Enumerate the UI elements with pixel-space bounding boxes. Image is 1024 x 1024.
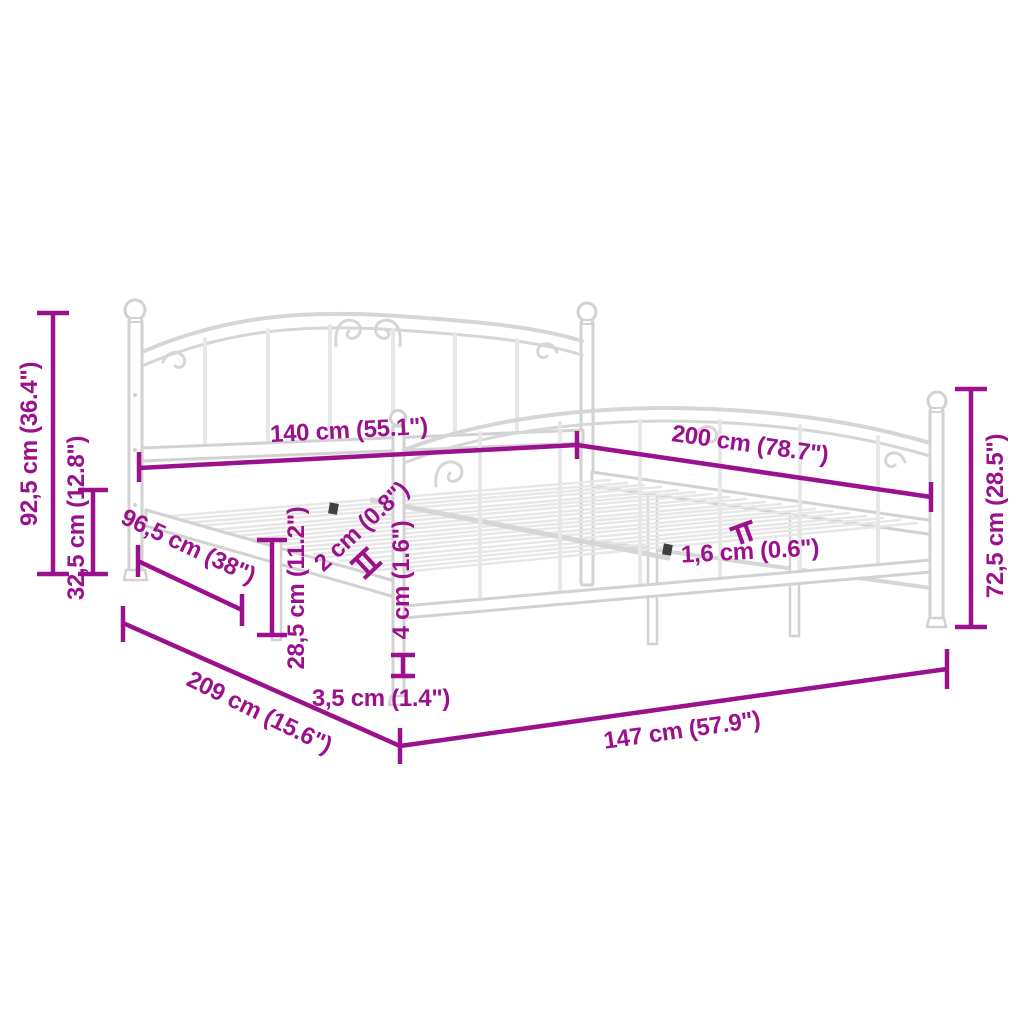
rail-clamp bbox=[328, 502, 339, 514]
dim-label-3-5-cm: 3,5 cm (1.4") bbox=[312, 685, 450, 713]
post-foot bbox=[927, 618, 946, 627]
headboard-scroll-icon bbox=[376, 320, 401, 346]
dim-label-32-5-cm: 32,5 cm (12.8") bbox=[63, 436, 91, 600]
dim-label-92-5-cm: 92,5 cm (36.4") bbox=[16, 362, 44, 526]
bed-frame-drawing bbox=[124, 300, 946, 705]
footboard-scroll-icon bbox=[886, 453, 905, 467]
footboard-far-post bbox=[930, 409, 943, 620]
dim-label-28-5-cm: 28,5 cm (11.2") bbox=[283, 507, 311, 670]
diagram-canvas: 92,5 cm (36.4") 32,5 cm (12.8") 96,5 cm … bbox=[0, 0, 1024, 1024]
headboard-scroll-icon bbox=[336, 320, 361, 346]
dim-147-cm-line bbox=[400, 649, 947, 764]
rail-clamp bbox=[662, 543, 673, 555]
footboard-bottom-rail bbox=[404, 560, 931, 618]
dim-label-72-5-cm: 72,5 cm (28.5") bbox=[982, 434, 1010, 598]
footboard-scroll-icon bbox=[436, 462, 462, 486]
post-foot bbox=[124, 570, 147, 580]
dim-label-4-cm: 4 cm (1.6") bbox=[388, 521, 416, 640]
bed-dimension-diagram bbox=[0, 0, 1024, 1024]
